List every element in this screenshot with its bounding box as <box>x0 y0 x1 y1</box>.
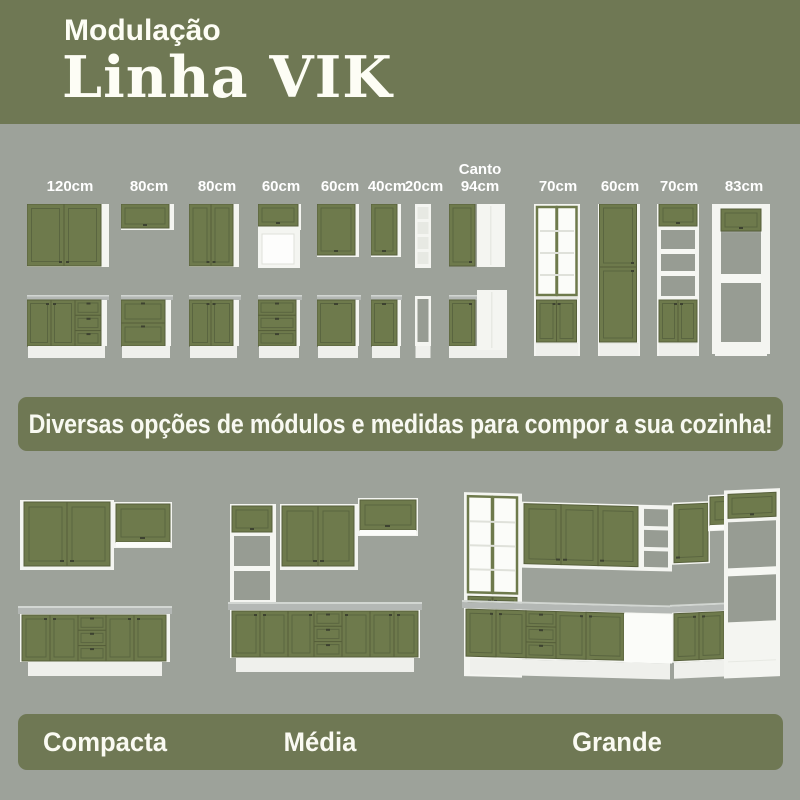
cabinet-illustration-83cm-tower <box>712 204 776 362</box>
cabinet-illustration-80cm-doors <box>189 204 245 362</box>
kitchen-label-media: Média <box>244 714 396 770</box>
module-column-60cm-tall: 60cm <box>598 124 642 364</box>
module-column-83cm-tower: 83cm <box>712 124 776 364</box>
product-line-title: Linha VIK <box>62 44 393 111</box>
cabinet-illustration-60cm-door <box>317 204 363 362</box>
kitchen-label-compacta: Compacta <box>29 714 181 770</box>
module-column-canto-94cm: Canto 94cm <box>449 124 511 364</box>
cabinet-illustration-20cm <box>415 204 433 362</box>
cabinet-illustration-60cm-tall <box>598 204 642 362</box>
kitchen-size-bar: Compacta Média Grande <box>18 714 783 770</box>
cabinet-illustration-120cm <box>27 204 113 362</box>
info-banner-text: Diversas opções de módulos e medidas par… <box>28 409 772 440</box>
kitchen-compacta-art <box>16 486 216 693</box>
kitchen-grande-art <box>460 480 785 695</box>
kitchen-grande-illustration <box>460 480 785 700</box>
cabinet-illustration-canto-94cm <box>449 204 511 362</box>
module-size-label: 83cm <box>692 124 796 196</box>
cabinet-illustration-80cm-flip <box>121 204 177 362</box>
cabinet-illustration-70cm-glass-tall <box>534 204 582 362</box>
kitchen-media-art <box>226 482 426 694</box>
info-banner: Diversas opções de módulos e medidas par… <box>18 397 783 451</box>
kitchen-compacta-illustration <box>16 486 216 698</box>
header-kicker: Modulação <box>64 14 221 48</box>
kitchen-label-grande: Grande <box>541 714 693 770</box>
module-column-80cm-doors: 80cm <box>189 124 245 364</box>
kitchen-media-illustration <box>226 482 426 699</box>
modules-section: 120cm 80cm 8 <box>0 124 800 374</box>
cabinet-illustration-60cm-niche <box>258 204 304 362</box>
module-column-70cm-glass-tall: 70cm <box>534 124 582 364</box>
cabinet-illustration-40cm <box>371 204 403 362</box>
header-band: Modulação Linha VIK <box>0 0 800 124</box>
cabinet-illustration-70cm-open-tall <box>657 204 701 362</box>
